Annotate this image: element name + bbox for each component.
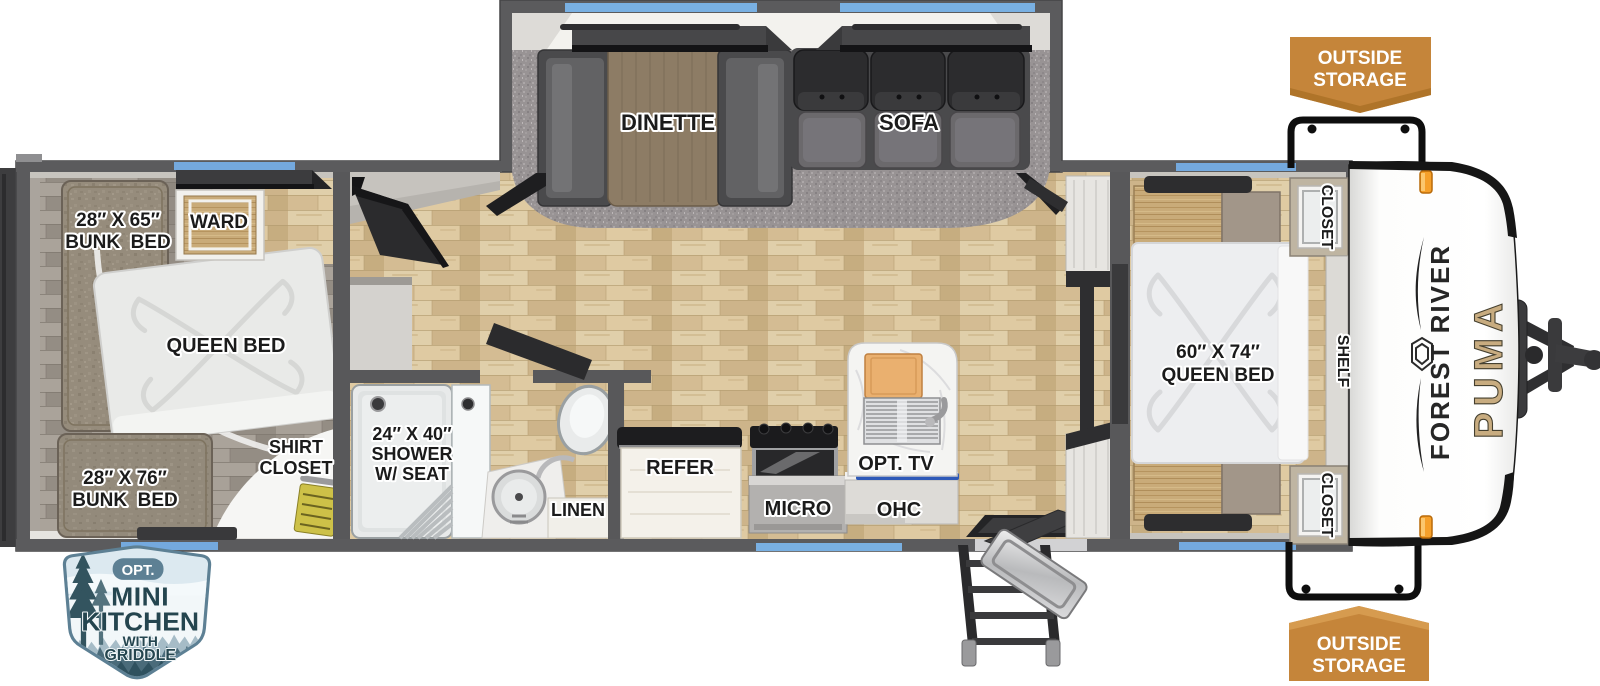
svg-text:CLOSET: CLOSET [259, 458, 332, 478]
svg-text:GRIDDLE: GRIDDLE [104, 647, 175, 664]
svg-text:WARD: WARD [190, 212, 248, 233]
svg-text:W/ SEAT: W/ SEAT [375, 464, 449, 484]
svg-text:STORAGE: STORAGE [1313, 70, 1407, 91]
svg-text:FOREST RIVER: FOREST RIVER [1425, 244, 1455, 460]
svg-text:28″ X 65″: 28″ X 65″ [76, 210, 160, 231]
svg-text:KITCHEN: KITCHEN [81, 607, 199, 637]
svg-text:MICRO: MICRO [765, 498, 832, 520]
svg-text:28″ X 76″: 28″ X 76″ [83, 468, 167, 489]
svg-text:SHOWER: SHOWER [372, 444, 453, 464]
svg-text:BUNK BED: BUNK BED [65, 232, 171, 253]
svg-text:PUMA: PUMA [1467, 297, 1511, 439]
svg-text:SHELF: SHELF [1334, 335, 1351, 388]
svg-text:QUEEN BED: QUEEN BED [167, 335, 286, 357]
svg-text:REFER: REFER [646, 457, 714, 479]
svg-text:OHC: OHC [877, 499, 921, 521]
svg-text:OPT.: OPT. [122, 563, 155, 579]
svg-text:STORAGE: STORAGE [1312, 656, 1406, 677]
svg-text:CLOSET: CLOSET [1318, 185, 1335, 250]
svg-text:CLOSET: CLOSET [1318, 473, 1335, 538]
svg-text:OUTSIDE: OUTSIDE [1317, 634, 1401, 655]
svg-text:24″ X 40″: 24″ X 40″ [372, 424, 452, 444]
svg-text:SOFA: SOFA [879, 110, 939, 135]
svg-text:SHIRT: SHIRT [269, 437, 323, 457]
svg-text:60″ X 74″: 60″ X 74″ [1176, 342, 1260, 363]
svg-text:OPT. TV: OPT. TV [858, 453, 934, 475]
svg-text:LINEN: LINEN [551, 500, 605, 520]
svg-text:OUTSIDE: OUTSIDE [1318, 48, 1402, 69]
svg-text:QUEEN BED: QUEEN BED [1162, 365, 1275, 386]
svg-text:DINETTE: DINETTE [621, 110, 715, 135]
svg-text:BUNK BED: BUNK BED [72, 490, 178, 511]
